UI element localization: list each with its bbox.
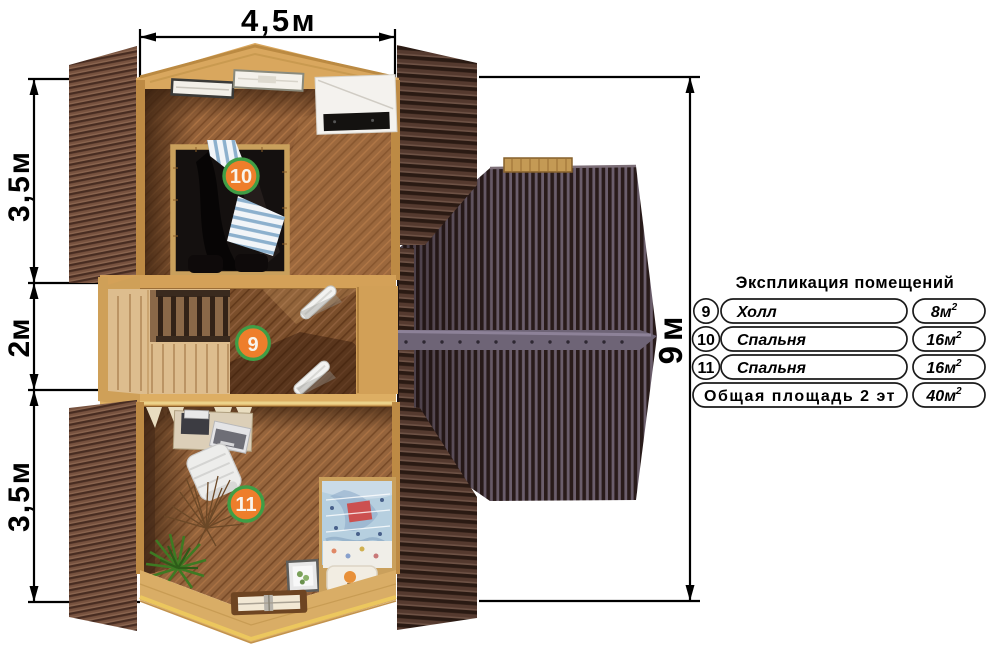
svg-text:11: 11	[698, 360, 715, 377]
svg-text:3,5м: 3,5м	[3, 460, 36, 532]
svg-text:2м: 2м	[3, 319, 36, 358]
svg-text:Холл: Холл	[736, 304, 777, 321]
svg-text:Спальня: Спальня	[737, 360, 807, 377]
svg-text:9: 9	[247, 334, 258, 356]
svg-text:4,5м: 4,5м	[241, 3, 317, 38]
svg-text:9: 9	[702, 304, 711, 321]
svg-text:11: 11	[235, 494, 256, 516]
svg-text:10: 10	[697, 332, 715, 349]
svg-text:Экспликация помещений: Экспликация помещений	[736, 274, 955, 292]
svg-text:10: 10	[230, 166, 252, 188]
svg-text:Спальня: Спальня	[737, 332, 807, 349]
svg-text:3,5м: 3,5м	[3, 150, 36, 222]
svg-text:9м: 9м	[652, 312, 689, 365]
svg-text:Общая площадь 2 эт: Общая площадь 2 эт	[704, 388, 896, 405]
